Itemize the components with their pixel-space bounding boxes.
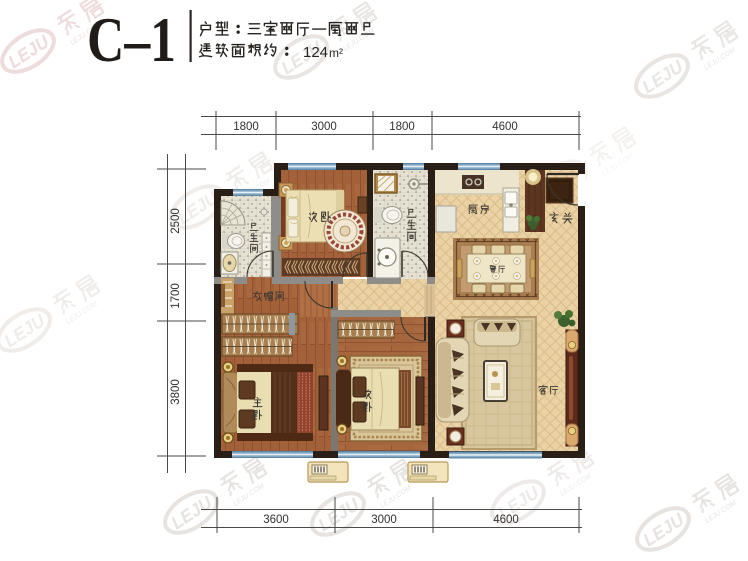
svg-text:4600: 4600	[493, 514, 519, 526]
svg-text:3000: 3000	[371, 514, 397, 526]
svg-text:4600: 4600	[492, 121, 518, 133]
svg-text:m²: m²	[329, 46, 343, 60]
svg-text:1700: 1700	[170, 283, 182, 309]
svg-text:C–1: C–1	[87, 4, 176, 75]
svg-text:3000: 3000	[311, 121, 337, 133]
svg-text:2500: 2500	[170, 208, 182, 234]
svg-text:1800: 1800	[389, 121, 415, 133]
svg-text:124: 124	[303, 44, 328, 61]
svg-text:1800: 1800	[233, 121, 259, 133]
svg-text:3800: 3800	[170, 379, 182, 405]
svg-text:3600: 3600	[263, 514, 289, 526]
